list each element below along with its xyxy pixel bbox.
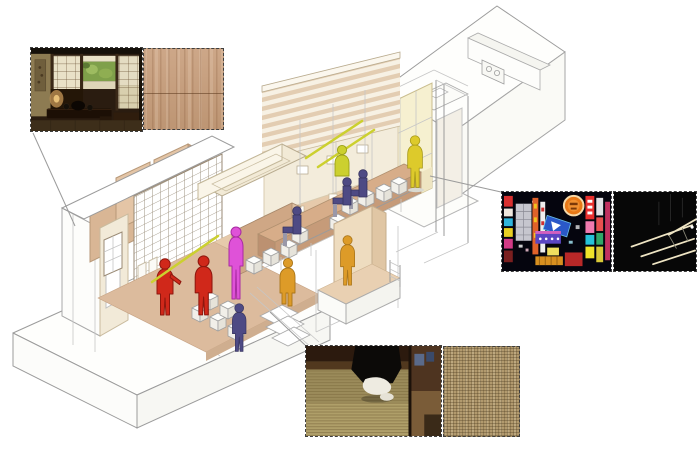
neon-street-art <box>502 192 611 271</box>
hanging-scroll <box>35 60 46 91</box>
reference-photo-tatami-steps <box>305 345 442 437</box>
japanese-interior-art <box>31 48 142 131</box>
tatami-steps-art <box>306 346 441 436</box>
wood-grain-seam <box>144 93 223 94</box>
reference-photo-neon-signs <box>501 191 612 272</box>
material-swatch-burlap <box>443 346 520 437</box>
tabi-sock-toe <box>380 393 394 401</box>
end-wall <box>100 214 128 336</box>
entry-door <box>437 108 462 208</box>
material-swatch-wood <box>143 48 224 130</box>
teapot <box>71 101 85 111</box>
leader-line-interior <box>33 133 75 226</box>
pendant-lights-art <box>614 192 696 271</box>
bench <box>114 112 140 120</box>
reference-photo-pendant-lights <box>613 191 697 272</box>
reference-photo-japanese-interior <box>30 47 143 132</box>
shoji-screen-right <box>118 56 139 85</box>
design-board <box>0 0 700 475</box>
shoji-screen-left <box>54 56 81 89</box>
person-chartreuse-staff <box>335 145 349 176</box>
